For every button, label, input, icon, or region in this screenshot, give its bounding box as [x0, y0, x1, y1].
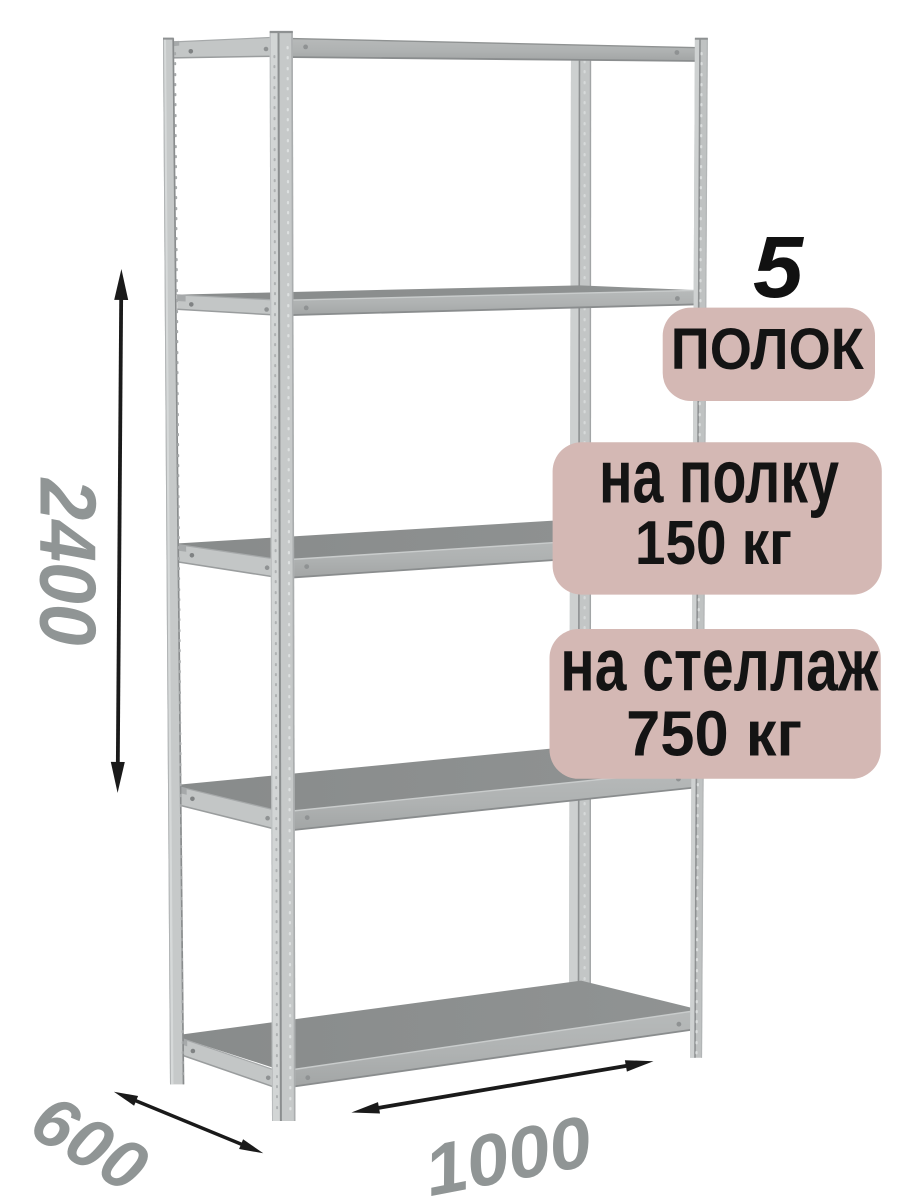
svg-text:на стеллаж: на стеллаж	[560, 624, 879, 707]
svg-text:750 кг: 750 кг	[626, 698, 802, 770]
svg-text:ПОЛОК: ПОЛОК	[671, 317, 865, 382]
svg-text:2400: 2400	[24, 477, 113, 646]
svg-text:150 кг: 150 кг	[635, 509, 792, 578]
svg-text:на полку: на полку	[599, 435, 839, 519]
svg-text:5: 5	[753, 219, 805, 316]
